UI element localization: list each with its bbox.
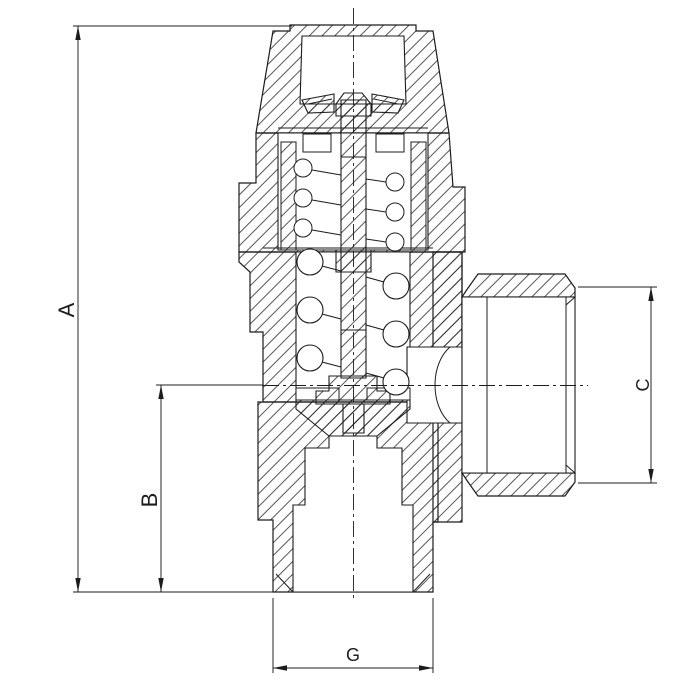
valve-technical-drawing: A B C G xyxy=(0,0,700,700)
spring-coil xyxy=(294,159,312,177)
arrowhead-down xyxy=(158,578,163,592)
spring-coil xyxy=(294,189,312,207)
dimension-label-c: C xyxy=(633,379,653,392)
spring-coil xyxy=(383,273,409,299)
arrowhead-up xyxy=(158,385,163,399)
dimension-c: C xyxy=(578,287,657,483)
dimension-label-g: G xyxy=(346,645,360,665)
arrowhead-left xyxy=(273,665,287,670)
side-port-bottom-band xyxy=(462,473,575,496)
side-port-top-band xyxy=(462,274,575,297)
arrowhead-down xyxy=(75,578,80,592)
cartridge-wall-right xyxy=(411,142,426,250)
arrowhead-down xyxy=(648,469,653,483)
washer-right xyxy=(376,134,404,152)
side-port-bore xyxy=(462,297,575,473)
spring-coil xyxy=(386,203,404,221)
spring-coil xyxy=(294,219,312,237)
arrowhead-up xyxy=(648,287,653,301)
arrowhead-up xyxy=(75,26,80,40)
dimension-b: B xyxy=(137,385,263,592)
dimension-g: G xyxy=(273,598,433,673)
dimension-label-b: B xyxy=(137,493,162,508)
spring-coil xyxy=(383,321,409,347)
bottom-bore-cavity xyxy=(293,436,413,592)
spring-coil xyxy=(383,369,409,395)
valve-section-svg: A B C G xyxy=(0,0,700,700)
spring-coil xyxy=(386,173,404,191)
dimension-label-a: A xyxy=(54,302,79,317)
washer-left xyxy=(303,134,331,152)
spring-coil xyxy=(297,345,323,371)
arrowhead-right xyxy=(419,665,433,670)
spring-coil xyxy=(297,297,323,323)
spring-coil xyxy=(297,249,323,275)
spring-coil xyxy=(386,233,404,251)
